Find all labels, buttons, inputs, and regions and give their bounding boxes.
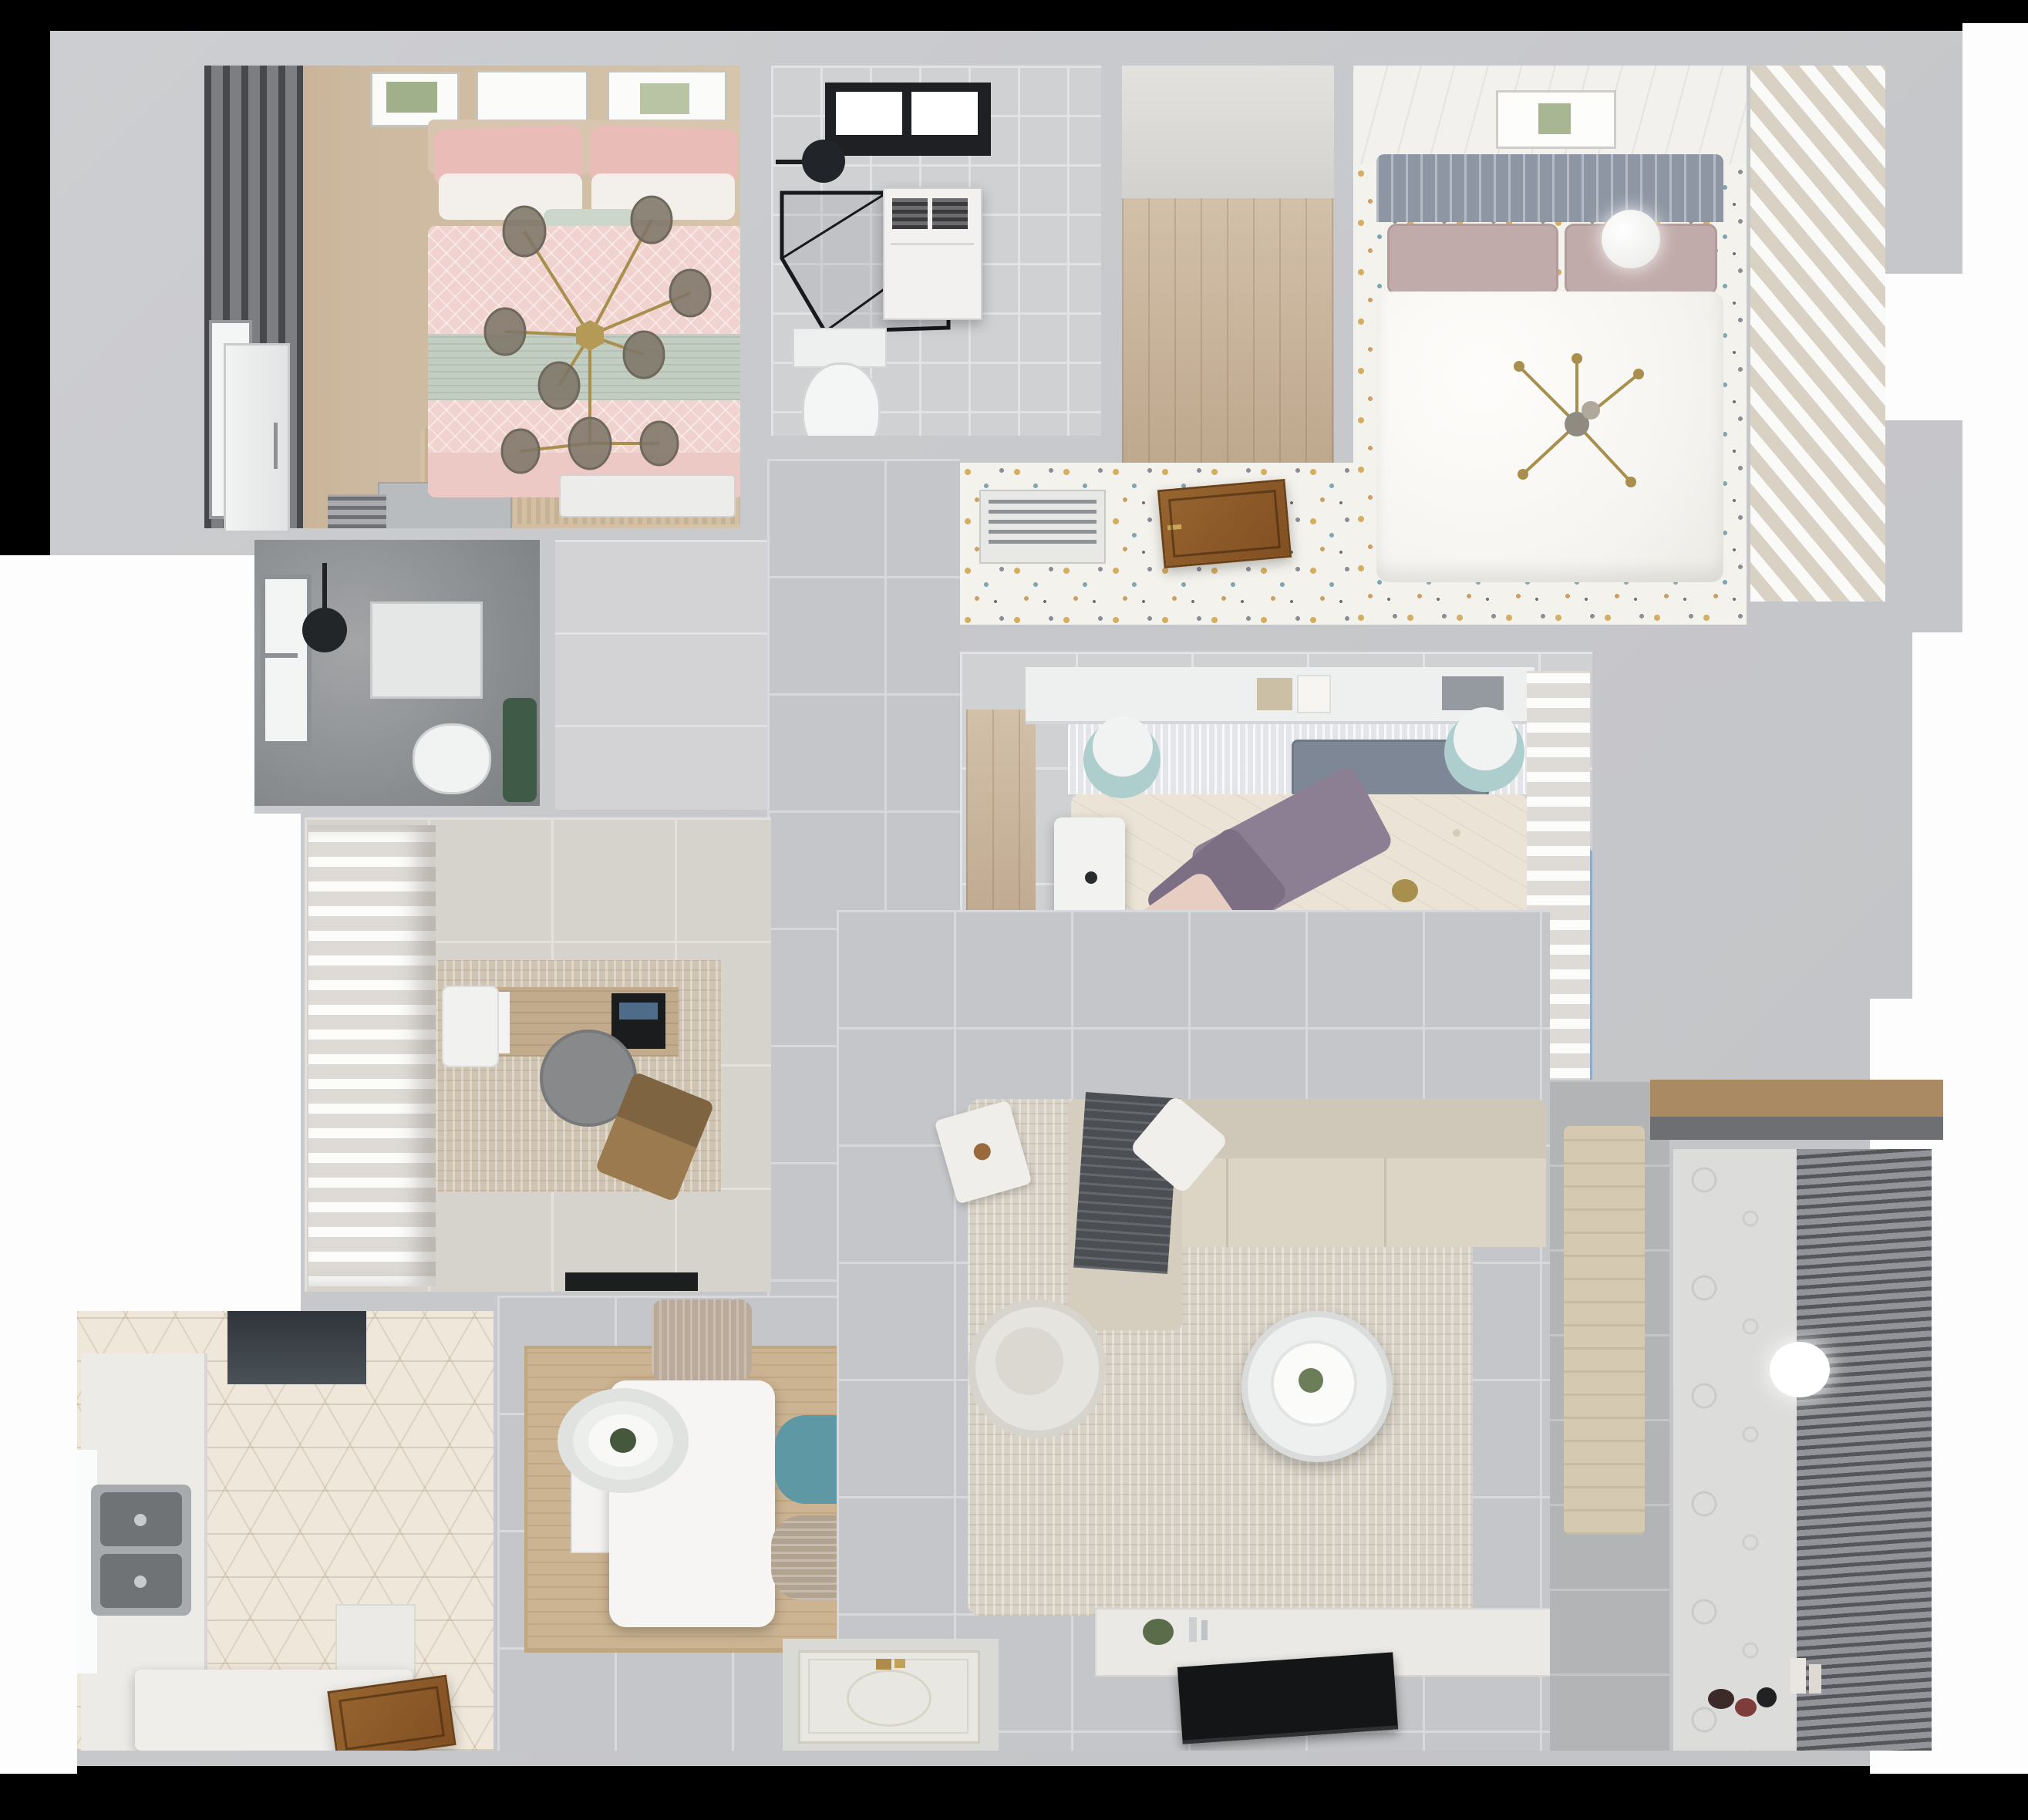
- toy-bottle: [1809, 1664, 1821, 1694]
- sputnik-chandelier-icon: [1492, 339, 1662, 509]
- dark-blinds: [1797, 1149, 1932, 1751]
- hall-spur: [555, 540, 767, 810]
- toy: [1757, 1687, 1777, 1707]
- picture-frame: [1496, 90, 1616, 149]
- doormat: [565, 1272, 698, 1291]
- ball-lamp-icon: [1770, 1342, 1830, 1397]
- towel-cabinet: [883, 187, 982, 320]
- towel: [932, 198, 968, 229]
- oval-pendant-lamp-icon: [558, 1388, 689, 1493]
- mat-medallion: [847, 1670, 931, 1727]
- armchair-seat: [995, 1327, 1063, 1395]
- books: [1442, 676, 1504, 710]
- teal-pouf-top: [1454, 707, 1517, 770]
- floorplan-canvas: [0, 0, 2028, 1820]
- round-coffee-table: [1241, 1311, 1393, 1462]
- ball-lamp-icon: [1602, 210, 1660, 268]
- room-living: [837, 910, 1550, 1751]
- ceiling-panel: [1122, 66, 1334, 198]
- round-armchair: [968, 1299, 1107, 1438]
- gold-handles-icon: [894, 1659, 905, 1668]
- console-plant: [1143, 1619, 1174, 1645]
- double-sink: [91, 1485, 191, 1616]
- open-wood-door: [1157, 479, 1292, 568]
- frame-art: [386, 82, 437, 113]
- room-white-bedroom: [1353, 66, 1747, 625]
- shower-mat: [370, 602, 483, 699]
- towel: [892, 198, 928, 229]
- outside-area: [1881, 274, 2028, 420]
- decor-item: [972, 1141, 992, 1162]
- room-balcony: [1673, 1149, 1932, 1751]
- wall-shelf: [1026, 667, 1534, 724]
- window: [261, 575, 312, 746]
- door-handle-icon: [274, 423, 278, 469]
- wood-shelf: [1650, 1080, 1943, 1117]
- coffee-table-plant: [1299, 1368, 1323, 1393]
- utility-strip: [1550, 1080, 1669, 1751]
- wood-floor: [1122, 198, 1334, 470]
- room-bathroom-top: [771, 66, 1101, 436]
- chair-beige: [652, 1299, 752, 1380]
- white-door: [224, 343, 290, 533]
- books: [1297, 675, 1331, 713]
- ac-vent: [979, 490, 1106, 564]
- console-bottle: [1201, 1620, 1208, 1640]
- white-chair: [442, 986, 499, 1067]
- foot-bench: [559, 474, 736, 517]
- double-bed-white: [1376, 154, 1723, 582]
- room-shower: [254, 540, 540, 806]
- slat-headboard: [1376, 154, 1723, 222]
- books: [1257, 678, 1292, 710]
- radiator: [328, 494, 386, 528]
- door-handle-icon: [1167, 524, 1181, 531]
- shelf-shadow: [1650, 1117, 1943, 1140]
- gold-branch-chandelier-icon: [459, 189, 721, 497]
- outside-area: [0, 814, 301, 1319]
- towel: [1564, 1126, 1645, 1535]
- toilet-bowl: [413, 723, 491, 794]
- frame-art: [1538, 103, 1571, 134]
- outside-area: [1912, 632, 2028, 1010]
- ac-vent-louvers-icon: [989, 499, 1097, 544]
- plant-centerpiece: [610, 1428, 636, 1453]
- room-study: [305, 817, 771, 1292]
- desk-item: [1085, 871, 1097, 884]
- toy-bottle: [1791, 1658, 1806, 1694]
- window-mullion: [265, 653, 298, 658]
- frame-art: [640, 83, 689, 114]
- white-curtains: [308, 825, 436, 1286]
- gold-knot-icon: [1392, 879, 1418, 902]
- chair-beige: [771, 1515, 837, 1600]
- outside-area: [0, 1272, 77, 1774]
- outside-area: [0, 555, 254, 821]
- toy: [1735, 1698, 1757, 1717]
- pillow-mauve: [1387, 224, 1558, 295]
- sink-drain-icon: [134, 1576, 147, 1588]
- room-kitchen: [77, 1311, 494, 1751]
- chair-teal: [775, 1415, 837, 1504]
- plant: [503, 698, 537, 802]
- room-walkin-closet: [1122, 66, 1334, 470]
- flat-tv: [1177, 1652, 1398, 1744]
- drawer-line: [891, 243, 974, 245]
- white-bedroom-entry-strip: [960, 463, 1353, 625]
- laptop-screen: [619, 1003, 658, 1020]
- ceiling-shower-head-icon: [302, 608, 347, 652]
- sink-drain-icon: [134, 1514, 147, 1526]
- toy: [1708, 1689, 1734, 1709]
- console-bottle: [1189, 1617, 1197, 1642]
- teal-pouf-top: [1093, 716, 1153, 777]
- slatted-closet: [1750, 66, 1885, 602]
- range-hood: [227, 1311, 366, 1384]
- gold-handles-icon: [876, 1659, 891, 1670]
- ornate-door-mat: [798, 1650, 980, 1744]
